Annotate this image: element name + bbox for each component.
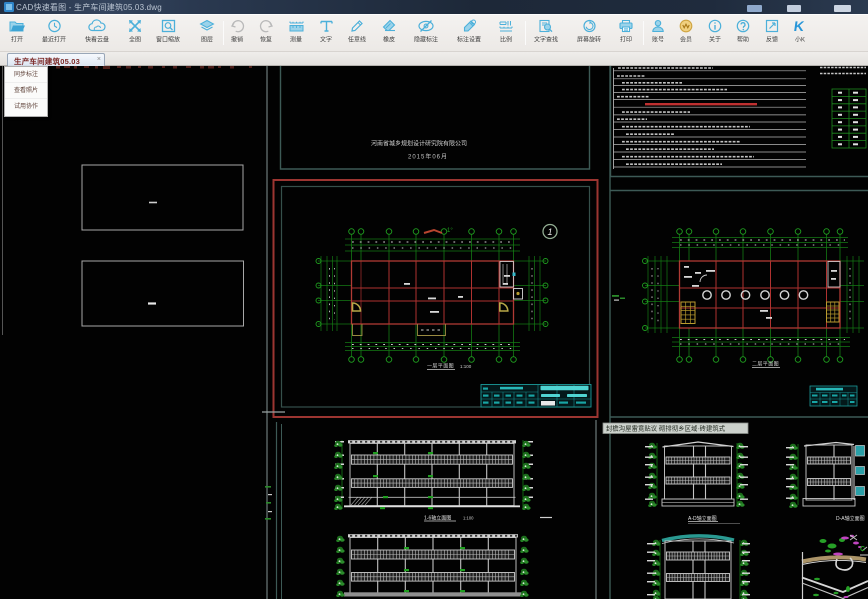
svg-text:河南省城乡规划设计研究院有限公司: 河南省城乡规划设计研究院有限公司 (371, 140, 467, 148)
svg-text:1:100: 1:100 (460, 364, 472, 369)
svg-text:一层平面图: 一层平面图 (427, 364, 454, 370)
svg-text:C: C (860, 546, 865, 553)
svg-text:封檐沟屋雷竟贴议 砌排彻乡区域·砖建筑式: 封檐沟屋雷竟贴议 砌排彻乡区域·砖建筑式 (606, 424, 726, 433)
svg-text:1°: 1° (447, 228, 453, 234)
svg-text:1: 1 (547, 227, 552, 237)
svg-text:1-6轴立面图: 1-6轴立面图 (424, 515, 451, 522)
svg-text:A-D轴立面图: A-D轴立面图 (688, 515, 717, 522)
svg-text:1:100: 1:100 (463, 516, 474, 521)
svg-text:K: K (793, 19, 806, 33)
svg-text:D-A轴立面图: D-A轴立面图 (836, 515, 865, 522)
svg-text:二层平面图: 二层平面图 (752, 362, 779, 368)
svg-text:2015年06月: 2015年06月 (408, 153, 448, 161)
